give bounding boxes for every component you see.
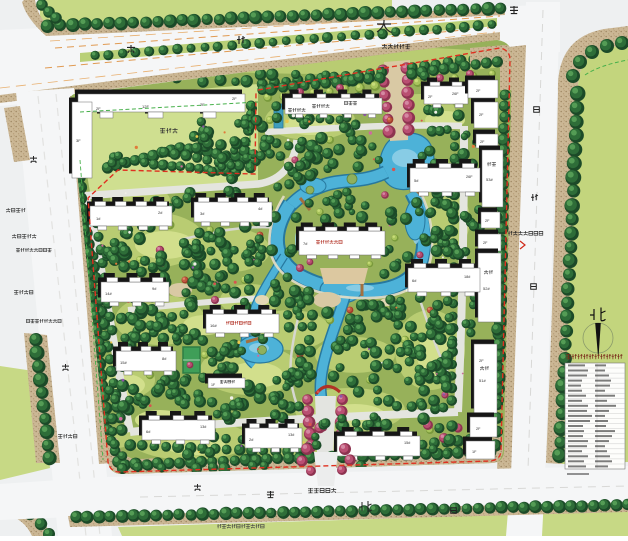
svg-text:53#: 53# — [486, 177, 493, 182]
svg-text:1#: 1# — [96, 216, 101, 221]
svg-text:18#: 18# — [464, 275, 471, 279]
svg-text:9#: 9# — [152, 286, 157, 291]
svg-text:15#: 15# — [120, 360, 127, 365]
svg-text:2F: 2F — [483, 241, 488, 245]
svg-text:16#: 16# — [210, 323, 217, 328]
svg-text:2F: 2F — [480, 140, 485, 144]
svg-text:2F: 2F — [232, 96, 237, 101]
svg-text:2F: 2F — [476, 89, 481, 93]
svg-text:2F: 2F — [479, 113, 484, 117]
svg-text:52#: 52# — [483, 286, 490, 291]
svg-text:6#: 6# — [146, 429, 151, 434]
svg-text:26F: 26F — [452, 92, 459, 96]
svg-text:2F: 2F — [96, 106, 101, 111]
svg-text:3#: 3# — [200, 211, 205, 216]
svg-text:15#: 15# — [404, 441, 411, 445]
svg-text:8#: 8# — [162, 356, 167, 361]
svg-text:4#: 4# — [258, 206, 263, 211]
svg-text:2#: 2# — [158, 210, 163, 215]
svg-text:13#: 13# — [200, 425, 207, 429]
svg-text:1F: 1F — [472, 450, 477, 454]
svg-text:26F: 26F — [466, 175, 473, 179]
svg-text:51#: 51# — [479, 378, 486, 383]
svg-text:6#: 6# — [412, 278, 417, 283]
svg-text:2F: 2F — [485, 219, 490, 223]
svg-text:2F: 2F — [479, 358, 484, 363]
svg-text:2F: 2F — [200, 102, 205, 107]
svg-text:3F: 3F — [76, 138, 81, 143]
svg-text:5#: 5# — [414, 178, 419, 183]
svg-text:13#: 13# — [288, 433, 295, 437]
svg-text:2F: 2F — [428, 95, 433, 99]
svg-text:2#: 2# — [249, 437, 254, 442]
svg-text:7#: 7# — [303, 241, 308, 246]
svg-text:14#: 14# — [105, 291, 112, 296]
svg-text:2F: 2F — [476, 427, 481, 431]
